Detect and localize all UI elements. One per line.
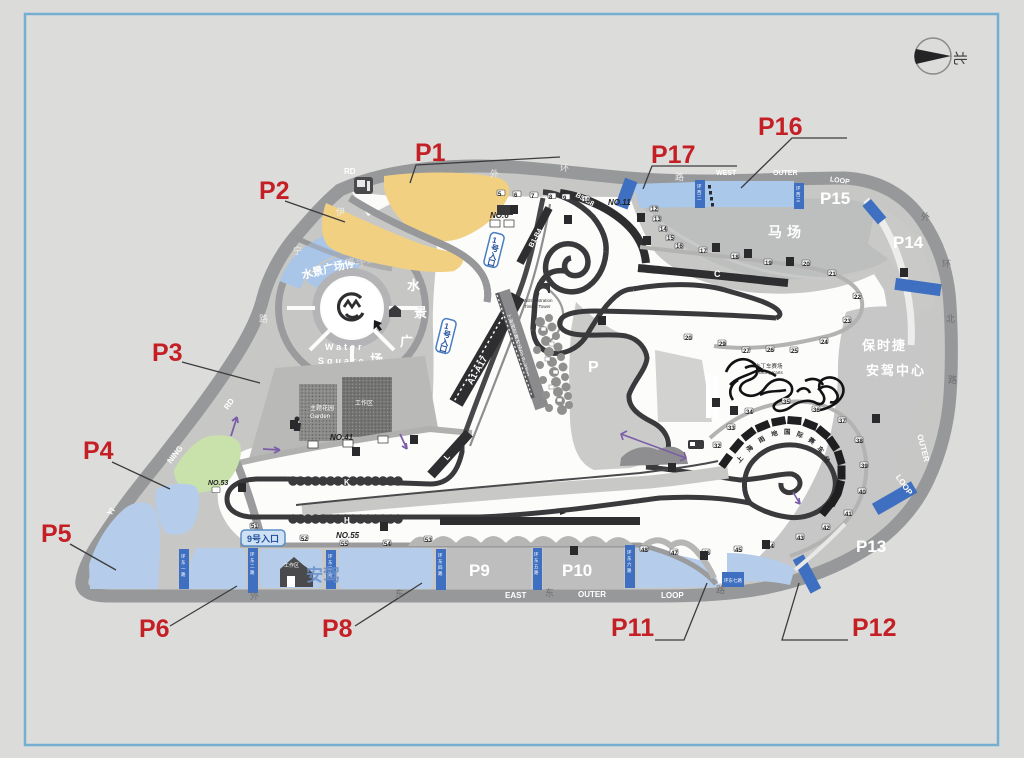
svg-text:10: 10 — [583, 198, 590, 204]
svg-text:P12: P12 — [852, 614, 896, 642]
svg-text:P17: P17 — [651, 141, 695, 169]
svg-text:42: 42 — [823, 526, 830, 532]
svg-text:16: 16 — [676, 244, 683, 250]
svg-text:P9: P9 — [469, 561, 490, 580]
svg-text:38: 38 — [856, 439, 863, 445]
svg-text:环东二路: 环东二路 — [250, 552, 255, 576]
svg-text:37: 37 — [839, 419, 846, 425]
svg-text:路: 路 — [948, 374, 957, 385]
svg-text:35: 35 — [783, 400, 790, 406]
svg-text:外: 外 — [250, 590, 259, 601]
svg-text:马场: 马场 — [768, 224, 806, 240]
svg-text:34: 34 — [746, 410, 753, 416]
svg-text:伊: 伊 — [336, 206, 345, 217]
svg-text:51: 51 — [251, 524, 258, 530]
svg-text:20: 20 — [685, 336, 692, 342]
svg-text:路: 路 — [675, 171, 684, 182]
svg-text:东: 东 — [395, 588, 404, 599]
svg-text:P3: P3 — [152, 339, 183, 367]
svg-text:主题花园: 主题花园 — [310, 404, 334, 412]
svg-text:13: 13 — [654, 217, 661, 223]
svg-text:RD: RD — [344, 167, 356, 176]
svg-text:外: 外 — [490, 168, 499, 179]
svg-text:宁: 宁 — [293, 245, 302, 256]
svg-text:环东五路: 环东五路 — [534, 552, 539, 576]
svg-text:Timing Tower: Timing Tower — [524, 304, 551, 309]
svg-text:WEST: WEST — [716, 170, 737, 177]
svg-text:P2: P2 — [259, 177, 290, 205]
svg-text:45: 45 — [735, 548, 742, 554]
svg-text:北: 北 — [952, 51, 968, 65]
svg-text:54: 54 — [384, 542, 391, 548]
svg-text:安驾中心: 安驾中心 — [866, 363, 926, 378]
svg-text:OUTER: OUTER — [578, 590, 606, 599]
svg-text:P5: P5 — [41, 520, 72, 548]
svg-text:环东七路: 环东七路 — [724, 577, 742, 584]
svg-text:EAST: EAST — [505, 591, 526, 600]
svg-text:P16: P16 — [758, 113, 802, 141]
svg-text:18: 18 — [732, 255, 739, 261]
svg-text:P10: P10 — [562, 561, 592, 580]
svg-text:国: 国 — [784, 427, 791, 436]
svg-text:21: 21 — [829, 272, 836, 278]
svg-text:P: P — [588, 359, 599, 376]
svg-text:NO.55: NO.55 — [336, 531, 360, 540]
svg-text:K: K — [344, 478, 350, 487]
svg-text:NO.53: NO.53 — [208, 480, 228, 487]
svg-text:环东一路: 环东一路 — [181, 554, 186, 578]
svg-text:环西三: 环西三 — [796, 186, 801, 203]
svg-text:17: 17 — [700, 249, 707, 255]
svg-text:OUTER: OUTER — [773, 170, 798, 177]
svg-text:环: 环 — [560, 163, 569, 173]
svg-text:47: 47 — [671, 551, 678, 557]
svg-text:P13: P13 — [856, 537, 886, 556]
svg-text:48: 48 — [641, 548, 648, 554]
svg-text:P11: P11 — [611, 614, 654, 642]
svg-text:40: 40 — [859, 490, 866, 496]
svg-text:东: 东 — [545, 587, 554, 598]
svg-text:Water: Water — [325, 342, 365, 352]
svg-text:环东六路: 环东六路 — [627, 550, 632, 574]
svg-text:北: 北 — [946, 314, 955, 324]
svg-text:52: 52 — [301, 537, 308, 543]
svg-text:39: 39 — [861, 464, 868, 470]
svg-text:卡丁车赛场: 卡丁车赛场 — [755, 362, 783, 370]
svg-text:14: 14 — [660, 227, 667, 233]
svg-text:环东四路: 环东四路 — [438, 553, 443, 577]
svg-text:29: 29 — [719, 342, 726, 348]
svg-text:55: 55 — [341, 542, 348, 548]
svg-text:路: 路 — [716, 584, 725, 595]
svg-text:P14: P14 — [893, 233, 924, 252]
svg-text:20: 20 — [803, 262, 810, 268]
svg-text:15: 15 — [667, 236, 674, 242]
svg-text:保时捷: 保时捷 — [861, 338, 907, 353]
svg-text:水: 水 — [407, 278, 421, 293]
svg-text:Racing Karts: Racing Karts — [757, 370, 784, 375]
svg-text:路: 路 — [259, 313, 268, 324]
svg-text:22: 22 — [854, 295, 861, 301]
svg-text:P15: P15 — [820, 189, 850, 208]
svg-text:P4: P4 — [83, 437, 114, 465]
svg-text:12: 12 — [651, 207, 658, 213]
svg-text:P1: P1 — [415, 139, 446, 167]
svg-text:P6: P6 — [139, 615, 170, 643]
svg-text:C: C — [714, 269, 721, 279]
svg-text:环西二: 环西二 — [697, 184, 702, 201]
svg-text:23: 23 — [844, 319, 851, 325]
svg-text:工作区: 工作区 — [355, 399, 373, 407]
svg-text:LOOP: LOOP — [661, 591, 684, 600]
svg-text:9号入口: 9号入口 — [247, 534, 279, 544]
svg-text:NO.11: NO.11 — [608, 198, 631, 207]
svg-text:19: 19 — [765, 261, 772, 267]
svg-text:32: 32 — [714, 444, 721, 450]
svg-text:景: 景 — [414, 305, 427, 320]
svg-text:41: 41 — [845, 512, 852, 518]
svg-text:27: 27 — [743, 349, 750, 355]
svg-text:环: 环 — [942, 259, 951, 269]
svg-text:外: 外 — [921, 211, 930, 222]
svg-text:Garden: Garden — [310, 414, 330, 420]
svg-text:H: H — [344, 516, 350, 525]
svg-text:26: 26 — [767, 348, 774, 354]
svg-text:广: 广 — [400, 334, 413, 349]
svg-text:24: 24 — [821, 340, 828, 346]
svg-text:43: 43 — [797, 536, 804, 542]
svg-text:36: 36 — [813, 408, 820, 414]
svg-text:Administration: Administration — [524, 298, 553, 303]
svg-text:53: 53 — [425, 538, 432, 544]
svg-text:33: 33 — [728, 426, 735, 432]
svg-text:P8: P8 — [322, 615, 353, 643]
svg-text:工作区: 工作区 — [284, 562, 299, 569]
svg-text:安驾: 安驾 — [306, 565, 340, 585]
svg-text:25: 25 — [791, 349, 798, 355]
